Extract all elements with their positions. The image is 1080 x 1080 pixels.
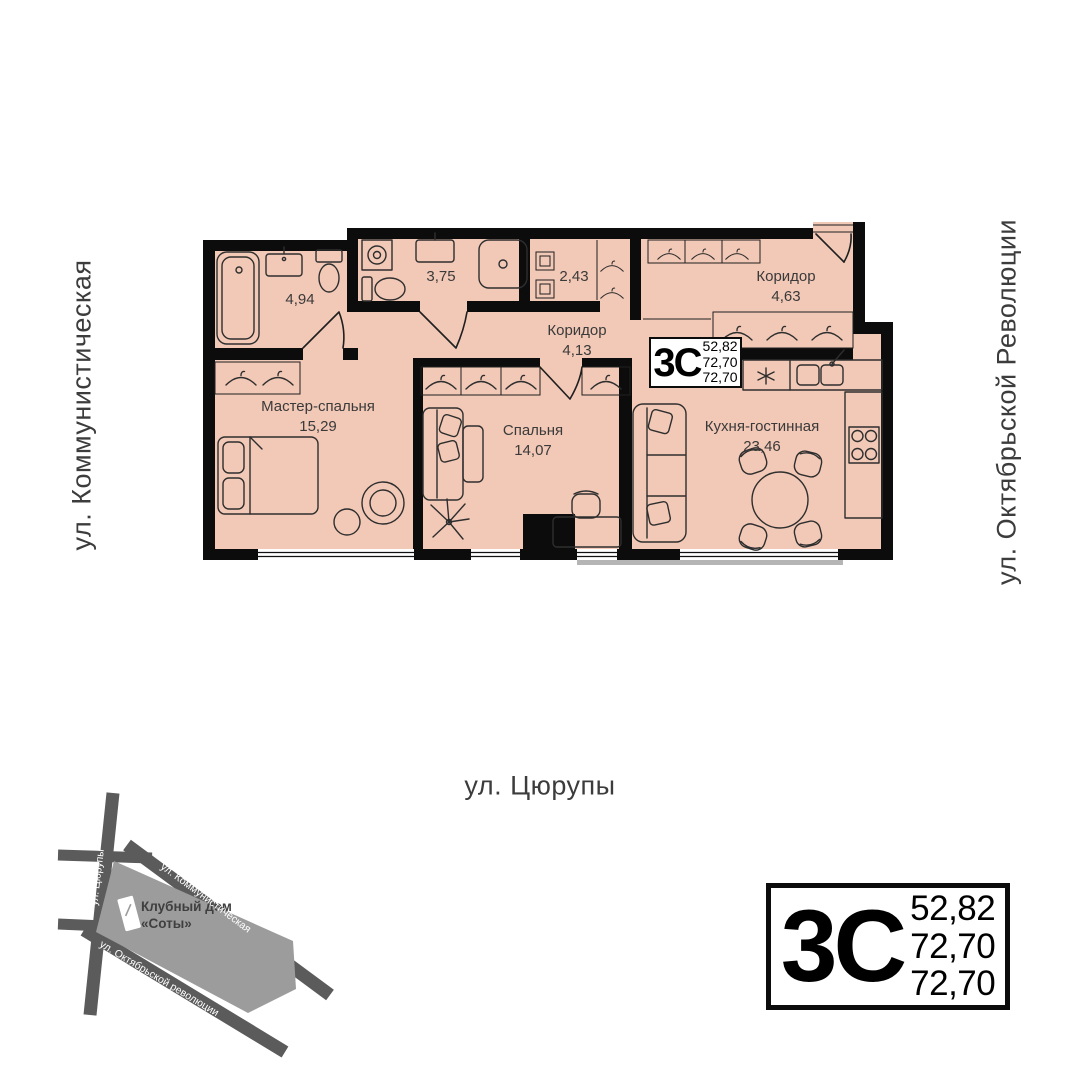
window-master [258,549,414,560]
room-area: 23,46 [705,437,819,457]
room-name: Коридор [547,321,606,341]
room-area: 2,43 [559,267,588,287]
area-living: 52,82 [910,890,995,928]
area-full: 72,70 [703,370,738,386]
balcony-shadow [577,560,843,565]
apartment-type: 3С [653,345,700,381]
room-area: 4,94 [285,290,314,310]
apartment-areas: 52,82 72,70 72,70 [703,339,738,386]
street-label-left: ул. Коммунистическая [67,260,98,551]
room-area: 14,07 [503,441,563,461]
floorplan-page: Клубный дом «Соты» ул. Цюрупы ул. Коммун… [0,0,1080,1080]
room-area: 3,75 [426,267,455,287]
room-name: Спальня [503,421,563,441]
window-bedroom-right [577,549,617,560]
room-label-storage: 2,43 [559,267,588,287]
room-label-bathroom-small: 3,75 [426,267,455,287]
apartment-badge-plan: 3С 52,82 72,70 72,70 [649,337,742,388]
room-name: Коридор [756,267,815,287]
window-kitchen [680,549,838,560]
map-building-name-line2: «Соты» [141,916,192,931]
room-area: 15,29 [261,417,375,437]
room-label-corridor-main: Коридор 4,13 [547,321,606,361]
room-area: 4,13 [547,341,606,361]
mini-map: Клубный дом «Соты» ул. Цюрупы ул. Коммун… [58,793,330,1052]
room-area: 4,63 [756,287,815,307]
room-name: Мастер-спальня [261,397,375,417]
room-label-bathroom-large: 4,94 [285,290,314,310]
room-label-corridor-entry: Коридор 4,63 [756,267,815,307]
street-label-right: ул. Октябрьской Революции [992,219,1023,585]
area-living: 52,82 [703,339,738,355]
area-total: 72,70 [910,928,995,966]
room-name: Кухня-гостинная [705,417,819,437]
apartment-areas: 52,82 72,70 72,70 [910,890,995,1003]
room-label-master-bedroom: Мастер-спальня 15,29 [261,397,375,437]
apartment-badge-large: 3С 52,82 72,70 72,70 [766,883,1010,1010]
street-label-bottom: ул. Цюрупы [464,771,615,802]
window-bedroom-left [471,549,520,560]
area-full: 72,70 [910,965,995,1003]
apartment-type: 3С [781,905,903,989]
room-label-kitchen-living: Кухня-гостинная 23,46 [705,417,819,457]
room-label-bedroom: Спальня 14,07 [503,421,563,461]
area-total: 72,70 [703,355,738,371]
